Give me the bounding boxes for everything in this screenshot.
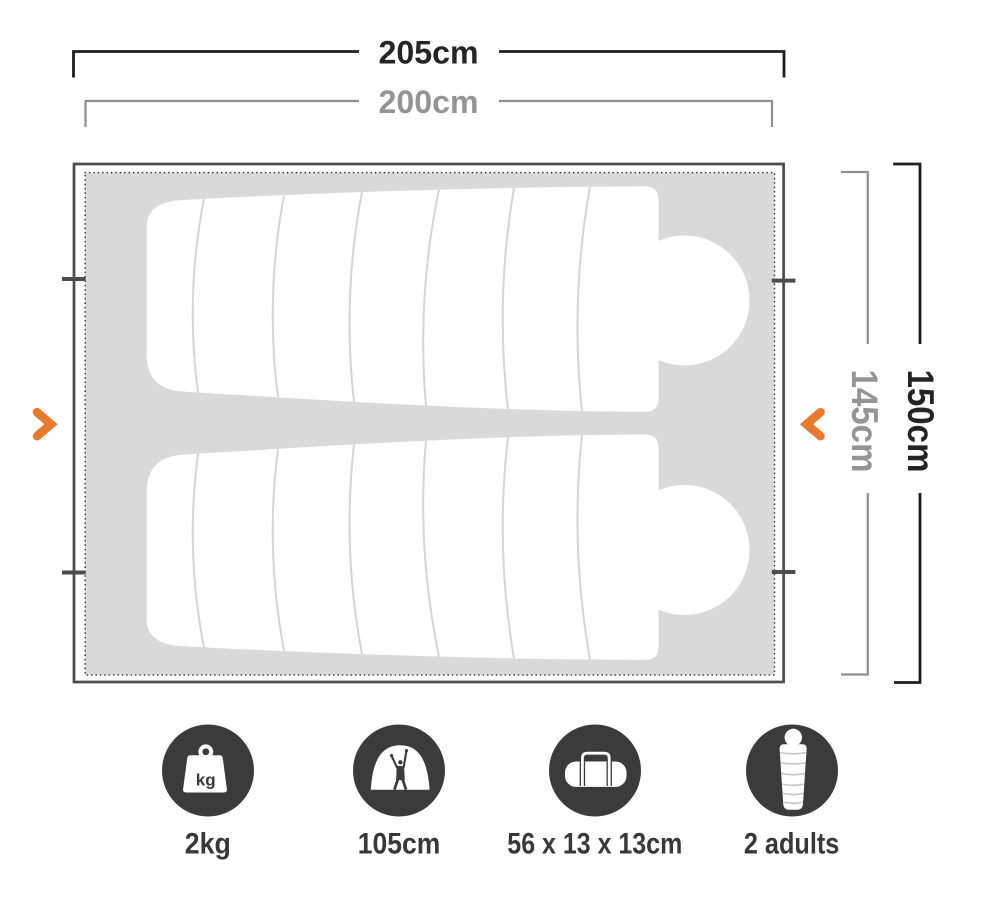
svg-text:105cm: 105cm <box>358 828 441 861</box>
svg-text:145cm: 145cm <box>844 370 885 473</box>
svg-text:56 x 13 x 13cm: 56 x 13 x 13cm <box>507 828 682 861</box>
svg-text:150cm: 150cm <box>900 370 941 473</box>
svg-text:2 adults: 2 adults <box>744 828 840 861</box>
svg-text:205cm: 205cm <box>379 34 479 70</box>
svg-text:200cm: 200cm <box>379 84 479 120</box>
svg-text:kg: kg <box>196 771 216 790</box>
svg-text:2kg: 2kg <box>185 828 231 861</box>
